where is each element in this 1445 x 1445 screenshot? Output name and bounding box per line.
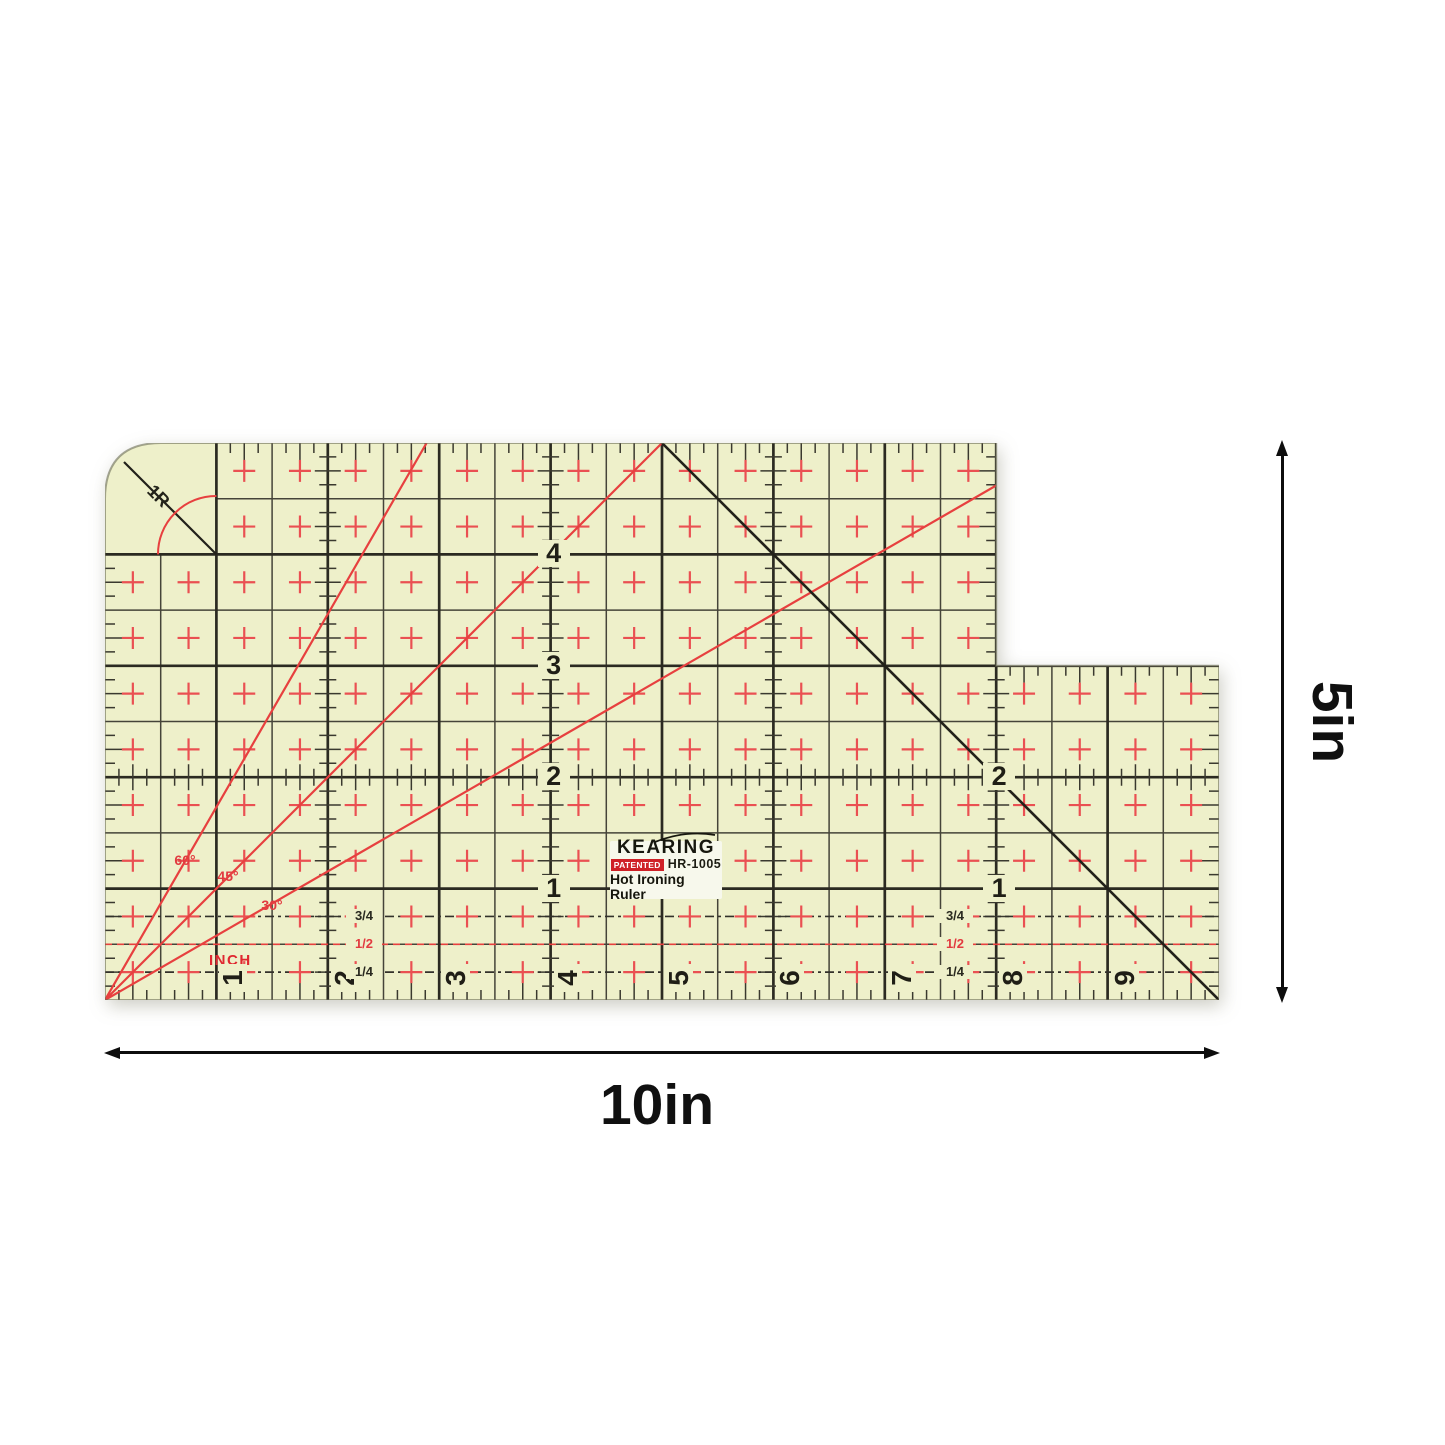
ruler-graphic: [105, 443, 1219, 1000]
arrowhead-left-icon: [104, 1047, 120, 1059]
fraction-label: 3/4: [346, 909, 382, 923]
left-scale-number: 2: [538, 763, 570, 790]
right-scale-number: 2: [983, 763, 1015, 790]
ruler-markings: [105, 443, 1219, 1000]
fraction-label: 3/4: [937, 909, 973, 923]
left-scale-number: 4: [538, 540, 570, 567]
fraction-label: 1/2: [937, 937, 973, 951]
angle-label: 30°: [254, 898, 290, 913]
arrowhead-up-icon: [1276, 440, 1288, 456]
right-scale-number: 1: [983, 875, 1015, 902]
fraction-label: 1/2: [346, 937, 382, 951]
height-dimension-line: [1281, 449, 1284, 994]
left-scale-number: 1: [538, 875, 570, 902]
left-scale-number: 3: [538, 652, 570, 679]
angle-label: 45°: [210, 869, 246, 884]
brand-swoosh-icon: [653, 833, 717, 843]
brand-model-row: PATENTED HR-1005: [611, 858, 721, 871]
bottom-scale-number: 8: [999, 964, 1027, 992]
bottom-scale-number: 5: [665, 964, 693, 992]
bottom-scale-number: 9: [1111, 964, 1139, 992]
angle-label: 60°: [167, 853, 203, 868]
brand-logo-plate: KEARING PATENTED HR-1005 Hot Ironing Rul…: [610, 841, 722, 899]
fraction-label: 1/4: [937, 965, 973, 979]
bottom-scale-number: 6: [776, 964, 804, 992]
fraction-label: 1/4: [346, 965, 382, 979]
bottom-scale-number: 4: [554, 964, 582, 992]
product-name: Hot Ironing Ruler: [610, 872, 722, 902]
arrowhead-right-icon: [1204, 1047, 1220, 1059]
patented-badge: PATENTED: [611, 859, 664, 871]
height-dimension-label: 5in: [1297, 652, 1367, 792]
brand-name: KEARING: [617, 838, 715, 857]
bottom-scale-number: 1: [219, 964, 247, 992]
product-diagram-canvas: 1R INCH KEARING PATENTED HR-1005 Hot Iro…: [0, 0, 1445, 1445]
arrowhead-down-icon: [1276, 987, 1288, 1003]
width-dimension-label: 10in: [557, 1072, 757, 1138]
width-dimension-line: [117, 1051, 1207, 1054]
model-number: HR-1005: [668, 858, 722, 871]
ironing-ruler: 1R INCH KEARING PATENTED HR-1005 Hot Iro…: [105, 443, 1219, 1000]
bottom-scale-number: 7: [888, 964, 916, 992]
bottom-scale-number: 3: [442, 964, 470, 992]
